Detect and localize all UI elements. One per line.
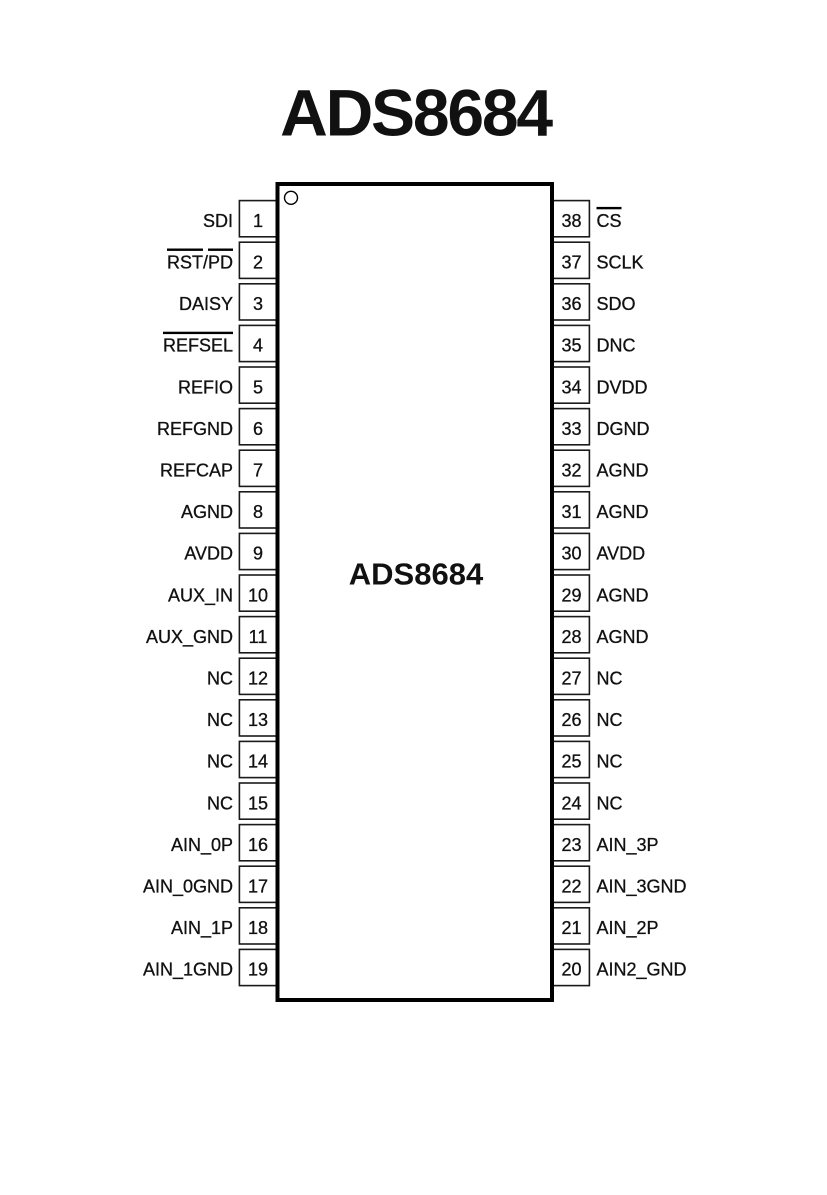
svg-text:DNC: DNC	[597, 336, 636, 356]
svg-text:25: 25	[561, 752, 581, 772]
svg-text:NC: NC	[207, 669, 233, 689]
svg-text:AIN_0P: AIN_0P	[171, 835, 233, 856]
svg-text:29: 29	[561, 585, 581, 605]
svg-text:22: 22	[561, 877, 581, 897]
svg-text:28: 28	[561, 627, 581, 647]
svg-text:AIN_1GND: AIN_1GND	[143, 960, 233, 981]
svg-text:16: 16	[248, 835, 268, 855]
svg-text:14: 14	[248, 752, 268, 772]
svg-text:REFGND: REFGND	[157, 419, 233, 439]
svg-text:35: 35	[561, 336, 581, 356]
svg-text:31: 31	[561, 502, 581, 522]
svg-text:34: 34	[561, 377, 581, 397]
svg-text:AVDD: AVDD	[184, 544, 233, 564]
svg-text:RST/PD: RST/PD	[167, 253, 233, 273]
svg-text:DAISY: DAISY	[179, 294, 233, 314]
svg-text:8: 8	[253, 502, 263, 522]
svg-text:DGND: DGND	[597, 419, 650, 439]
svg-text:15: 15	[248, 793, 268, 813]
svg-text:AGND: AGND	[597, 585, 649, 605]
svg-text:SDI: SDI	[203, 211, 233, 231]
svg-text:REFCAP: REFCAP	[160, 461, 233, 481]
svg-text:12: 12	[248, 669, 268, 689]
svg-text:NC: NC	[597, 710, 623, 730]
svg-text:18: 18	[248, 918, 268, 938]
svg-text:AGND: AGND	[597, 502, 649, 522]
svg-text:NC: NC	[597, 669, 623, 689]
svg-text:37: 37	[561, 253, 581, 273]
svg-text:1: 1	[253, 211, 263, 231]
svg-text:9: 9	[253, 544, 263, 564]
svg-text:36: 36	[561, 294, 581, 314]
svg-text:NC: NC	[597, 793, 623, 813]
svg-text:SDO: SDO	[597, 294, 636, 314]
svg-text:AUX_IN: AUX_IN	[168, 585, 233, 606]
svg-text:AGND: AGND	[597, 627, 649, 647]
svg-text:6: 6	[253, 419, 263, 439]
svg-text:21: 21	[561, 918, 581, 938]
svg-text:AGND: AGND	[597, 461, 649, 481]
svg-text:CS: CS	[597, 211, 622, 231]
svg-text:AUX_GND: AUX_GND	[146, 627, 233, 648]
svg-text:AVDD: AVDD	[597, 544, 646, 564]
svg-text:7: 7	[253, 461, 263, 481]
svg-text:ADS8684: ADS8684	[349, 557, 484, 592]
svg-text:17: 17	[248, 877, 268, 897]
svg-text:26: 26	[561, 710, 581, 730]
svg-text:10: 10	[248, 585, 268, 605]
svg-text:32: 32	[561, 461, 581, 481]
svg-text:AIN_0GND: AIN_0GND	[143, 877, 233, 898]
svg-text:11: 11	[249, 627, 268, 647]
svg-text:REFSEL: REFSEL	[163, 336, 233, 356]
svg-text:AIN_2P: AIN_2P	[597, 918, 659, 939]
svg-text:30: 30	[561, 544, 581, 564]
svg-text:27: 27	[561, 669, 581, 689]
svg-text:5: 5	[253, 377, 263, 397]
svg-text:SCLK: SCLK	[597, 253, 644, 273]
svg-text:24: 24	[561, 793, 581, 813]
svg-text:AIN_1P: AIN_1P	[171, 918, 233, 939]
svg-text:AIN_3GND: AIN_3GND	[597, 877, 687, 898]
svg-text:23: 23	[561, 835, 581, 855]
svg-text:NC: NC	[597, 752, 623, 772]
svg-text:33: 33	[561, 419, 581, 439]
svg-text:ADS8684: ADS8684	[280, 76, 553, 150]
svg-text:38: 38	[561, 211, 581, 231]
svg-text:AIN_3P: AIN_3P	[597, 835, 659, 856]
svg-text:13: 13	[248, 710, 268, 730]
svg-text:2: 2	[253, 253, 263, 273]
svg-text:19: 19	[248, 960, 268, 980]
svg-text:AIN2_GND: AIN2_GND	[597, 960, 687, 981]
svg-text:4: 4	[253, 336, 263, 356]
svg-text:REFIO: REFIO	[178, 377, 233, 397]
svg-text:3: 3	[253, 294, 263, 314]
svg-text:20: 20	[561, 960, 581, 980]
svg-text:AGND: AGND	[181, 502, 233, 522]
svg-text:DVDD: DVDD	[597, 377, 648, 397]
svg-text:NC: NC	[207, 793, 233, 813]
svg-text:NC: NC	[207, 710, 233, 730]
svg-text:NC: NC	[207, 752, 233, 772]
